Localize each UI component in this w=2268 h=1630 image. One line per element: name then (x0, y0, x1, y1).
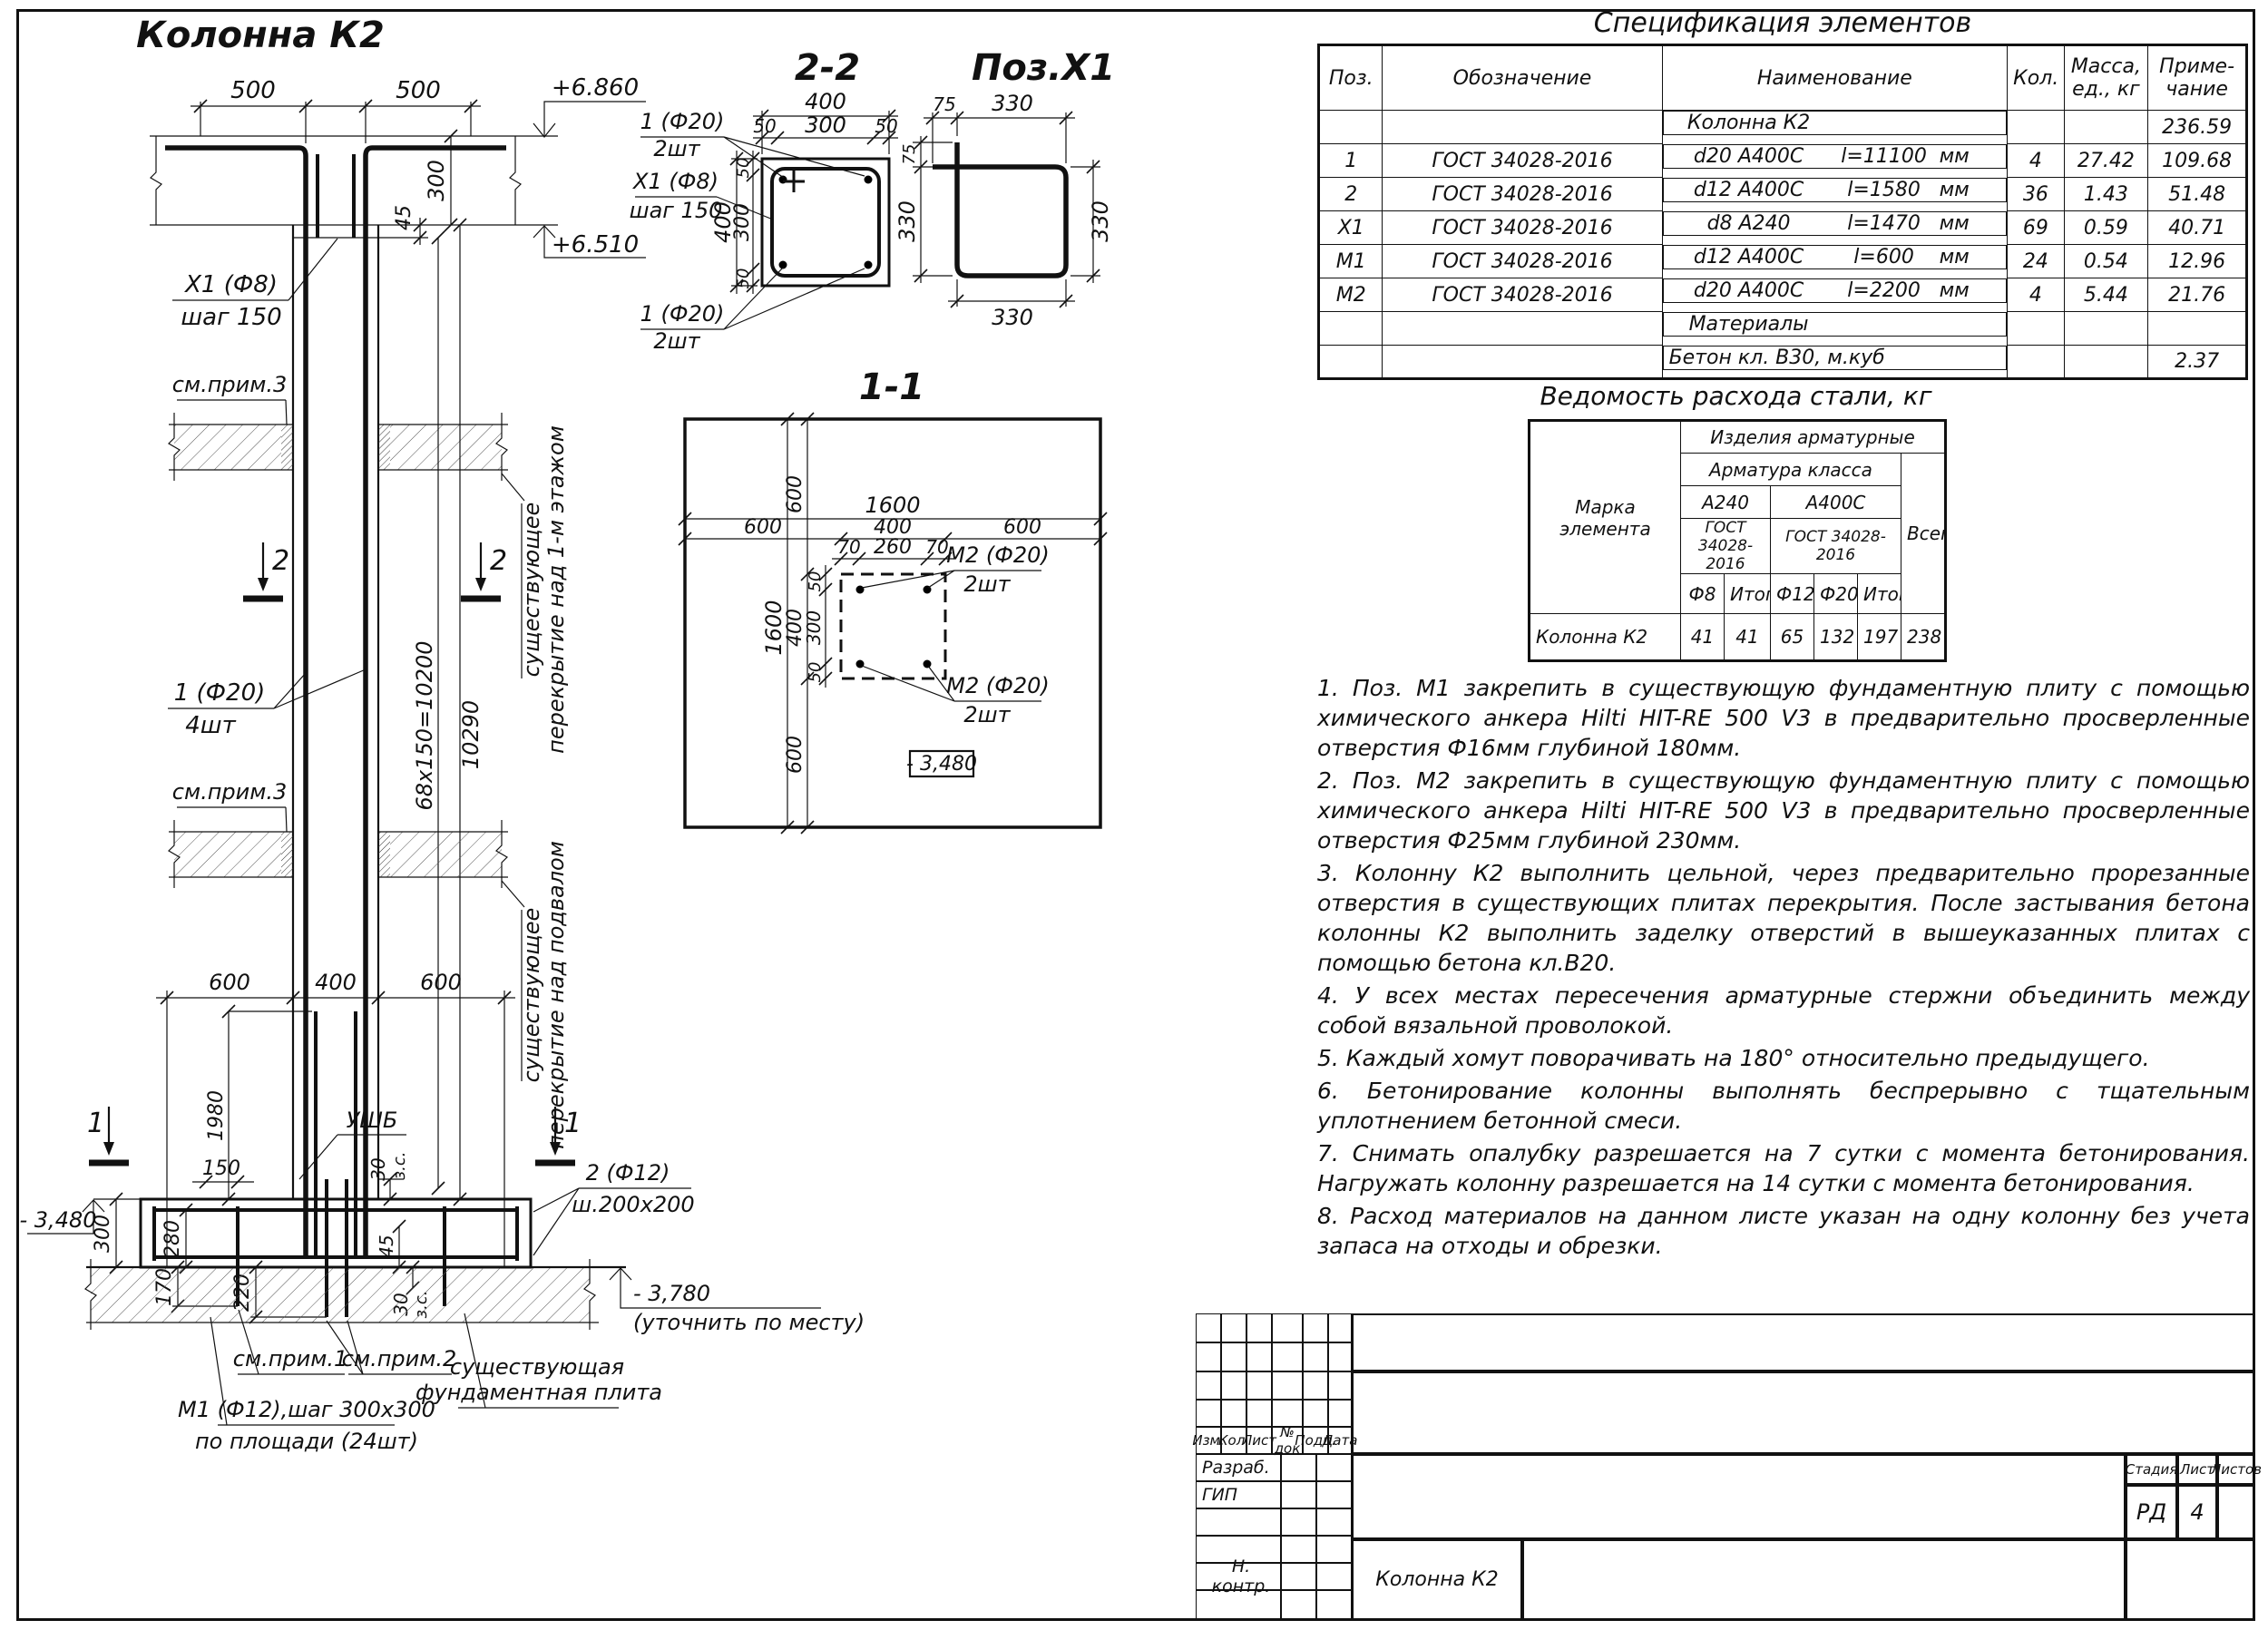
x1-callout: Х1 (Ф8) шаг 150 (172, 239, 337, 331)
dim-label: 600 (784, 736, 807, 774)
dim-1980-150: 1980 150 (192, 1005, 312, 1205)
spec-row: М2 ГОСТ 34028-2016 d20 А400Сl=2200мм 4 5… (1319, 278, 2247, 312)
dim-label: 500 (230, 77, 276, 104)
note-label: перекрытие над подвалом (543, 841, 569, 1149)
steel-col-mark: Марка элемента (1530, 421, 1681, 614)
foundation-plate-callout: существующая фундаментная плита (415, 1313, 662, 1408)
name-grade: d12 А400С (1669, 179, 1829, 201)
level-mark-3480: - 3,480 (20, 1200, 105, 1234)
spec-row: М1 ГОСТ 34028-2016 d12 А400Сl=600мм 24 0… (1319, 245, 2247, 278)
cell-mass: 27.42 (2064, 144, 2148, 178)
dim-label: 75 (900, 144, 919, 165)
spec-row: Колонна К2 236.59 (1319, 111, 2247, 144)
section-label: 2 (272, 545, 289, 577)
callout-label: 2 (Ф12) (586, 1160, 670, 1186)
section-label: 2 (490, 545, 507, 577)
dim-label: 400 (805, 89, 846, 114)
name-len: l=1580 (1829, 179, 1940, 201)
cell-mass: 5.44 (2064, 278, 2148, 312)
slab1 (169, 413, 508, 481)
cell-note: 109.68 (2148, 144, 2247, 178)
cell-desig: ГОСТ 34028-2016 (1383, 144, 1662, 178)
cell-f8: 41 (1681, 614, 1725, 661)
cell-mass: 0.59 (2064, 211, 2148, 245)
tb-col-list: Лист (1246, 1427, 1272, 1454)
column-outline (293, 225, 428, 1199)
name-unit: мм (1940, 179, 1970, 201)
name-len: l=1470 (1829, 212, 1940, 235)
name-len: l=11100 (1829, 145, 1940, 168)
note-label: существующее (519, 908, 544, 1083)
dim-label: 45 (376, 1235, 397, 1257)
name-grade: d20 А400С (1669, 279, 1829, 302)
callout-label: см.прим.3 (172, 779, 287, 805)
cell-name: d8 А240l=1470мм (1663, 211, 2008, 236)
dim-label: 600 (744, 516, 782, 539)
slab1-note: существующее перекрытие над 1-м этажом (502, 425, 569, 754)
foundation-plate (85, 1259, 626, 1330)
dim-label: 75 (933, 93, 955, 115)
cell-pos: 1 (1319, 144, 1383, 178)
callout-label: М2 (Ф20) (946, 542, 1050, 568)
section-mark-2: 2 2 (243, 542, 507, 599)
pos-x1-view: Поз.Х1 75 330 75 330 (894, 47, 1115, 330)
dim-label: 1980 (205, 1090, 228, 1141)
cell-desig: ГОСТ 34028-2016 (1383, 211, 1662, 245)
spec-row: Материалы (1319, 312, 2247, 346)
cell-desig (1383, 312, 1662, 346)
tb-col-izm: Изм. (1196, 1427, 1221, 1454)
cell-pos: М2 (1319, 278, 1383, 312)
name-grade: d12 А400С (1669, 246, 1829, 268)
dim-label: 300 (805, 112, 846, 138)
name-unit: мм (1940, 145, 1970, 168)
steel-gost1: ГОСТ 34028-2016 (1681, 519, 1771, 574)
dim-label: 70 (925, 536, 948, 558)
cell-mass: 0.54 (2064, 245, 2148, 278)
name-unit: мм (1940, 279, 1970, 302)
cell-pos: М1 (1319, 245, 1383, 278)
dim-label: 50 (875, 115, 897, 137)
level-label: - 3,480 (906, 753, 977, 776)
prim3-callout-2: см.прим.3 (172, 779, 287, 832)
steel-products-header: Изделия арматурные (1681, 421, 1946, 454)
tb-razrab: Разраб. (1196, 1454, 1281, 1481)
callout-label: шаг 150 (181, 304, 281, 331)
callout-label: см.прим.1 (233, 1346, 347, 1371)
name-grade: Бетон кл. В30, м.куб (1669, 346, 1885, 369)
pos1-callout: 1 (Ф20) 4шт (168, 669, 366, 739)
dim-label: 70 (837, 536, 860, 558)
cell-vsego: 238 (1901, 614, 1946, 661)
cell-name: d12 А400Сl=1580мм (1663, 178, 2008, 202)
cell-f20: 132 (1814, 614, 1858, 661)
name-unit: мм (1940, 212, 1970, 235)
steel-table-title: Ведомость расхода стали, кг (1528, 381, 1944, 411)
spec-table: Поз. Обозначение Наименование Кол. Масса… (1317, 44, 2248, 380)
level-label: - 3,480 (20, 1207, 97, 1233)
name-len: l=2200 (1829, 279, 1940, 302)
slab2-note: существующее перекрытие над подвалом (502, 841, 569, 1149)
pos2-callout: 2 (Ф12) ш.200х200 (533, 1160, 695, 1255)
spec-row: Х1 ГОСТ 34028-2016 d8 А240l=1470мм 69 0.… (1319, 211, 2247, 245)
dim-label: 45 (393, 205, 415, 230)
cell-name: d20 А400Сl=11100мм (1663, 144, 2008, 169)
dim-cover: 30 з.с. 45 (367, 1152, 409, 1274)
cell-mark: Колонна К2 (1530, 614, 1681, 661)
cell-desig: ГОСТ 34028-2016 (1383, 178, 1662, 211)
spec-row: 1 ГОСТ 34028-2016 d20 А400Сl=11100мм 4 2… (1319, 144, 2247, 178)
name-grade: Материалы (1669, 313, 1829, 336)
tb-sheets-label: Листов (2217, 1454, 2255, 1485)
callout-label: М1 (Ф12),шаг 300х300 (178, 1397, 435, 1422)
callout-label: 2шт (653, 328, 700, 354)
cell-desig: ГОСТ 34028-2016 (1383, 278, 1662, 312)
dim-label: 260 (874, 536, 912, 559)
p11-m2-callouts: М2 (Ф20) 2шт М2 (Ф20) 2шт (862, 542, 1050, 727)
cell-note: 40.71 (2148, 211, 2247, 245)
callout-label: фундаментная плита (415, 1380, 662, 1405)
callout-label: УШБ (347, 1108, 398, 1133)
dim-label: 330 (992, 305, 1033, 330)
spec-col-qty: Кол. (2008, 45, 2064, 111)
spec-col-note: Приме- чание (2148, 45, 2247, 111)
cell-qty (2008, 346, 2064, 379)
dim-label: 600 (420, 970, 462, 995)
spec-col-mass: Масса, ед., кг (2064, 45, 2148, 111)
cell-itogo1: 41 (1725, 614, 1771, 661)
callout-label: М2 (Ф20) (946, 673, 1050, 698)
cell-name: d12 А400Сl=600мм (1663, 245, 2008, 269)
level-label: - 3,780 (633, 1281, 710, 1306)
dim-label: 400 (315, 970, 357, 995)
level-mark-top: +6.860 (533, 74, 646, 137)
callout-label: 2шт (963, 702, 1011, 727)
cell-itogo2: 197 (1858, 614, 1901, 661)
dim-label: 600 (209, 970, 250, 995)
cell-mass (2064, 346, 2148, 379)
cell-name: Бетон кл. В30, м.куб (1663, 346, 2008, 370)
cell-desig: ГОСТ 34028-2016 (1383, 245, 1662, 278)
dim-label: 600 (1003, 516, 1041, 539)
steel-col-f20: Ф20 (1814, 574, 1858, 614)
dim-10200: 68х150=10200 10290 (412, 219, 484, 1205)
dim-label: 280 (161, 1220, 184, 1258)
name-len: l=600 (1829, 246, 1940, 268)
spec-row: 2 ГОСТ 34028-2016 d12 А400Сl=1580мм 36 1… (1319, 178, 2247, 211)
level-mark-3780: - 3,780 (уточнить по месту) (610, 1268, 865, 1335)
cell-qty: 24 (2008, 245, 2064, 278)
cell-pos: Х1 (1319, 211, 1383, 245)
dim-label: 50 (753, 115, 776, 137)
dim-label: 1600 (761, 600, 787, 655)
note-label: перекрытие над 1-м этажом (543, 425, 569, 754)
callout-label: Х1 (Ф8) (183, 271, 278, 298)
p11-level: - 3,480 (906, 751, 977, 776)
steel-a240-header: А240 (1681, 486, 1771, 519)
prim2-callout: см.прим.2 (327, 1321, 456, 1374)
dim-label: 10290 (458, 700, 484, 769)
dim-label: 330 (1088, 200, 1113, 242)
cell-f12: 65 (1771, 614, 1814, 661)
callout-label: 1 (Ф20) (640, 301, 725, 327)
tb-stage-label: Стадия (2126, 1454, 2177, 1485)
dim-label: 68х150=10200 (412, 640, 437, 810)
dim-label: 50 (806, 571, 825, 592)
callout-label: Х1 (Ф8) (631, 169, 719, 194)
dim-label: 330 (992, 91, 1033, 116)
note-5: 5. Каждый хомут поворачивать на 180° отн… (1317, 1043, 2250, 1073)
dim-label: з.с. (390, 1152, 409, 1180)
note-7: 7. Снимать опалубку разрешается на 7 сут… (1317, 1138, 2250, 1198)
dim-label: 300 (424, 160, 449, 201)
callout-label: 2шт (653, 136, 700, 161)
callout-label: ш.200х200 (572, 1192, 694, 1217)
cell-name: d20 А400Сl=2200мм (1663, 278, 2008, 303)
note-6: 6. Бетонирование колонны выполнять беспр… (1317, 1076, 2250, 1136)
pos-x1-title: Поз.Х1 (972, 47, 1115, 89)
note-2: 2. Поз. М2 закрепить в существующую фунд… (1317, 766, 2250, 855)
cell-pos: 2 (1319, 178, 1383, 211)
cell-qty (2008, 312, 2064, 346)
dim-label: 500 (396, 77, 441, 104)
cell-pos (1319, 111, 1383, 144)
steel-table: Марка элемента Изделия арматурные Армату… (1528, 419, 1947, 662)
tb-stage-value: РД (2126, 1485, 2177, 1539)
name-grade: Колонна К2 (1669, 112, 1829, 134)
section-2-2-title: 2-2 (795, 47, 860, 89)
dim-label: 300 (803, 610, 825, 645)
level-label: +6.860 (552, 74, 639, 102)
section-label: 1 (564, 1108, 582, 1139)
callout-label: 1 (Ф20) (174, 679, 266, 707)
tb-sheet-value: 4 (2177, 1485, 2217, 1539)
cell-mass: 1.43 (2064, 178, 2148, 211)
steel-col-f12: Ф12 (1771, 574, 1814, 614)
cell-note: 21.76 (2148, 278, 2247, 312)
level-mark-mid: +6.510 (533, 226, 646, 259)
dim-label: 600 (784, 475, 807, 513)
notes-block: 1. Поз. М1 закрепить в существующую фунд… (1317, 673, 2250, 1264)
steel-gost2: ГОСТ 34028-2016 (1771, 519, 1901, 574)
steel-col-itogo2: Итого (1858, 574, 1901, 614)
callout-label: по площади (24шт) (195, 1429, 418, 1454)
drawing-sheet: Колонна К2 (0, 0, 2268, 1630)
callout-label: см.прим.3 (172, 372, 287, 397)
cell-note: 12.96 (2148, 245, 2247, 278)
cell-qty (2008, 111, 2064, 144)
level-label: (уточнить по месту) (633, 1310, 865, 1335)
cell-note: 2.37 (2148, 346, 2247, 379)
slab2 (169, 820, 508, 888)
p11-dims-v: 1600 600 400 600 50 300 50 (761, 413, 832, 834)
cell-qty: 36 (2008, 178, 2064, 211)
prim3-callout-1: см.прим.3 (172, 372, 287, 425)
tb-gip: ГИП (1196, 1481, 1281, 1508)
spec-col-pos: Поз. (1319, 45, 1383, 111)
cell-pos (1319, 346, 1383, 379)
note-3: 3. Колонну К2 выполнить цельной, через п… (1317, 858, 2250, 978)
dim-label: 30 (367, 1157, 389, 1180)
note-label: существующее (519, 503, 544, 678)
tb-doc-name: Колонна К2 (1352, 1539, 1522, 1620)
dim-label: 300 (731, 203, 754, 241)
px1-dims: 75 330 75 330 330 330 (894, 91, 1113, 330)
drawing-views: Колонна К2 (0, 0, 1325, 1630)
note-8: 8. Расход материалов на данном листе ука… (1317, 1201, 2250, 1261)
section-mark-1: 1 1 (87, 1107, 582, 1163)
cell-qty: 4 (2008, 278, 2064, 312)
tb-nkontr: Н. контр. (1196, 1563, 1281, 1590)
cell-qty: 69 (2008, 211, 2064, 245)
level-label: +6.510 (552, 231, 639, 259)
steel-row: Колонна К2 41 41 65 132 197 238 (1530, 614, 1946, 661)
dim-label: 150 (202, 1157, 240, 1180)
spec-col-name: Наименование (1662, 45, 2008, 111)
plan-1-1-title: 1-1 (859, 366, 924, 408)
cell-note: 51.48 (2148, 178, 2247, 211)
dim-500: 500 500 (191, 77, 481, 143)
title-block: Изм. Кол. Лист № док Подп. Дата Разраб. … (1196, 1313, 2255, 1620)
dim-label: 50 (734, 268, 753, 289)
name-grade: d20 А400С (1669, 145, 1829, 168)
dim-label: 50 (806, 662, 825, 683)
s22-dims-top: 400 50 300 50 (753, 89, 898, 154)
dim-label: 50 (734, 158, 753, 179)
callout-label: шаг 150 (630, 198, 723, 223)
cell-note (2148, 312, 2247, 346)
dim-label: 330 (894, 200, 920, 242)
note-1: 1. Поз. М1 закрепить в существующую фунд… (1317, 673, 2250, 763)
cell-desig (1383, 111, 1662, 144)
callout-label: 2шт (963, 571, 1011, 597)
spec-table-title: Спецификация элементов (1317, 7, 2248, 39)
cell-mass (2064, 111, 2148, 144)
plan-1-1-view: 1-1 1600 600 400 600 70 260 70 (679, 366, 1107, 834)
callout-label: 1 (Ф20) (640, 109, 725, 134)
cell-mass (2064, 312, 2148, 346)
spec-row: Бетон кл. В30, м.куб 2.37 (1319, 346, 2247, 379)
cell-pos (1319, 312, 1383, 346)
note-4: 4. У всех местах пересечения арматурные … (1317, 981, 2250, 1040)
dim-label: 1600 (865, 493, 920, 518)
steel-col-f8: Ф8 (1681, 574, 1725, 614)
cell-note: 236.59 (2148, 111, 2247, 144)
section-label: 1 (87, 1108, 104, 1139)
tb-col-data: Дата (1328, 1427, 1352, 1454)
cell-qty: 4 (2008, 144, 2064, 178)
cell-name: Колонна К2 (1663, 111, 2008, 135)
cell-name: Материалы (1663, 312, 2008, 337)
steel-col-itogo1: Итого (1725, 574, 1771, 614)
name-grade: d8 А240 (1669, 212, 1829, 235)
m1-callout: М1 (Ф12),шаг 300х300 по площади (24шт) (178, 1317, 435, 1454)
section-2-2-view: 2-2 400 50 300 50 (630, 47, 898, 354)
steel-total-header: Всего (1901, 454, 1946, 614)
cell-desig (1383, 346, 1662, 379)
steel-a400-header: А400С (1771, 486, 1901, 519)
spec-col-desig: Обозначение (1383, 45, 1662, 111)
callout-label: 4шт (185, 712, 236, 739)
elevation-title: Колонна К2 (136, 15, 385, 56)
steel-class-header: Арматура класса (1681, 454, 1901, 486)
name-unit: мм (1940, 246, 1970, 268)
